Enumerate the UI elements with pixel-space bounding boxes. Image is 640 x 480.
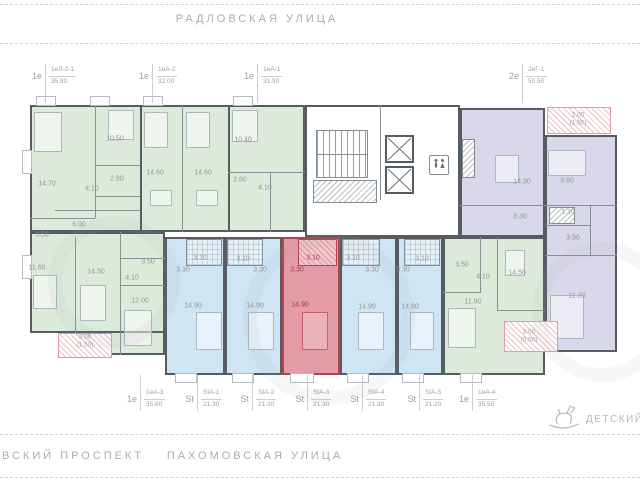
facade-window bbox=[460, 373, 482, 383]
room-area-label: 3.30 bbox=[365, 267, 379, 274]
street-label-top: РАДЛОВСКАЯ УЛИЦА bbox=[176, 13, 338, 25]
wall-line bbox=[443, 292, 481, 293]
room-area-label: 3.10 bbox=[236, 256, 250, 263]
unit-label-1ea-1[interactable]: 1е 1еА-131.90 bbox=[238, 64, 282, 88]
room-area-label: 14.90 bbox=[358, 304, 376, 311]
unit-label-sta-1[interactable]: St StА-121.30 bbox=[178, 387, 221, 411]
shaft-hatch bbox=[313, 180, 377, 203]
facade-window bbox=[22, 150, 32, 174]
furniture bbox=[33, 275, 57, 309]
callout-connector bbox=[307, 375, 308, 387]
room-area-label: 3.10 bbox=[346, 255, 360, 262]
room-area-label: 4.10 bbox=[85, 186, 99, 193]
wall-line bbox=[75, 237, 76, 333]
balcony-area-label: 3.00(0.50) bbox=[521, 329, 538, 346]
room-area-label: 14.90 bbox=[291, 302, 309, 309]
wall-line bbox=[120, 285, 165, 286]
wall-line bbox=[140, 105, 142, 232]
wall-line bbox=[380, 105, 381, 200]
staircase bbox=[316, 130, 368, 178]
street-dashed-line bbox=[0, 43, 640, 44]
wall-line bbox=[95, 196, 140, 197]
room-area-label: 3.30 bbox=[253, 267, 267, 274]
unit-label-2eg-1[interactable]: 2е 2еГ-150.50 bbox=[503, 64, 547, 88]
room-area-label: 2.80 bbox=[233, 177, 247, 184]
street-dashed-line bbox=[0, 434, 640, 435]
room-area-label: 6.00 bbox=[72, 222, 86, 229]
room-area-label: 3.90 bbox=[566, 235, 580, 242]
street-dashed-line bbox=[0, 4, 640, 5]
wall-line bbox=[460, 205, 617, 206]
facade-window bbox=[402, 373, 424, 383]
room-area-label: 14.90 bbox=[184, 303, 202, 310]
furniture bbox=[548, 150, 586, 176]
wc-sign-icon bbox=[429, 155, 449, 175]
callout-connector bbox=[252, 375, 253, 387]
callout-connector bbox=[197, 375, 198, 387]
room-area-label: 3.10 bbox=[306, 255, 320, 262]
furniture bbox=[302, 312, 328, 350]
unit-label-sta-3-selected[interactable]: St StА-321.30 bbox=[288, 387, 331, 411]
elevator-icon bbox=[385, 166, 414, 194]
room-area-label: 4.10 bbox=[476, 274, 490, 281]
room-area-label: 11.90 bbox=[465, 299, 482, 306]
room-area-label: 14.80 bbox=[401, 304, 419, 311]
room-area-label: 14.30 bbox=[513, 179, 531, 186]
furniture bbox=[34, 112, 62, 152]
wall-line bbox=[120, 232, 121, 355]
callout-connector bbox=[362, 375, 363, 387]
furniture bbox=[150, 190, 172, 206]
room-area-label: 11.60 bbox=[29, 265, 46, 272]
room-area-label: 11.20 bbox=[569, 293, 586, 300]
wall-line bbox=[270, 172, 271, 232]
facade-window bbox=[232, 373, 254, 383]
unit-area-1ea-4[interactable] bbox=[443, 237, 545, 375]
street-label-bottom-left: ВСКИЙ ПРОСПЕКТ bbox=[2, 450, 144, 462]
facade-window bbox=[233, 96, 253, 106]
wall-line bbox=[545, 255, 617, 256]
wall-line bbox=[95, 165, 140, 166]
wall-line bbox=[480, 237, 481, 292]
wall-line bbox=[182, 105, 183, 232]
room-area-label: 3.30 bbox=[396, 267, 410, 274]
balcony-area-label: 1.00(1.50) bbox=[570, 112, 587, 129]
unit-label-sta-5[interactable]: St StА-521.20 bbox=[400, 387, 443, 411]
wall-line bbox=[95, 105, 96, 218]
facade-window bbox=[90, 96, 110, 106]
furniture bbox=[124, 310, 152, 346]
furniture bbox=[410, 312, 434, 350]
furniture bbox=[358, 312, 384, 350]
furniture bbox=[144, 112, 168, 148]
room-area-label: 14.50 bbox=[87, 269, 105, 276]
room-area-label: 14.50 bbox=[508, 270, 526, 277]
bathroom-selected bbox=[298, 239, 337, 266]
wall-line bbox=[590, 205, 591, 255]
elevator-icon bbox=[385, 135, 414, 163]
callout-connector bbox=[45, 88, 46, 103]
room-area-label: 12.00 bbox=[131, 298, 149, 305]
room-area-label: 3.50 bbox=[35, 232, 49, 239]
callout-connector bbox=[522, 88, 523, 103]
wall-line bbox=[228, 172, 305, 173]
furniture bbox=[248, 312, 274, 350]
unit-label-1ea-2[interactable]: 1е 1еА-232.00 bbox=[133, 64, 177, 88]
wall-line bbox=[30, 218, 95, 219]
furniture bbox=[196, 190, 218, 206]
room-area-label: 3.30 bbox=[290, 267, 304, 274]
kindergarten-label: ДЕТСКИЙ bbox=[586, 414, 640, 425]
street-dashed-line bbox=[0, 477, 640, 478]
wall-line bbox=[55, 210, 140, 211]
room-area-label: 3.30 bbox=[176, 267, 190, 274]
rocking-horse-icon bbox=[546, 400, 582, 432]
shaft-hatch bbox=[462, 139, 475, 178]
room-area-label: 14.90 bbox=[246, 303, 264, 310]
room-area-label: 10.40 bbox=[234, 137, 252, 144]
room-area-label: 14.60 bbox=[146, 170, 164, 177]
facade-window bbox=[36, 96, 56, 106]
street-label-bottom-center: ПАХОМОВСКАЯ УЛИЦА bbox=[167, 450, 343, 462]
callout-connector bbox=[140, 375, 141, 387]
room-area-label: 3.50 bbox=[455, 262, 469, 269]
room-area-label: 4.10 bbox=[258, 185, 272, 192]
room-area-label: 3.10 bbox=[193, 255, 207, 262]
unit-label-1el-2-1[interactable]: 1е 1еЛ-2-135.80 bbox=[26, 64, 76, 88]
wall-line bbox=[228, 105, 230, 232]
balcony-area-label: 3.00(1.50) bbox=[77, 334, 94, 351]
furniture bbox=[196, 312, 222, 350]
wall-line bbox=[545, 225, 590, 226]
room-area-label: 10.50 bbox=[106, 136, 124, 143]
room-area-label: 2.80 bbox=[110, 176, 124, 183]
wall-line bbox=[497, 310, 545, 311]
callout-connector bbox=[257, 88, 258, 103]
room-area-label: 1.10 bbox=[561, 209, 575, 216]
facade-window bbox=[175, 373, 197, 383]
room-area-label: 4.10 bbox=[125, 275, 139, 282]
furniture bbox=[448, 308, 476, 348]
room-area-label: 14.70 bbox=[38, 181, 56, 188]
bathroom bbox=[342, 239, 380, 266]
floor-plan-page: РАДЛОВСКАЯ УЛИЦА bbox=[0, 0, 640, 480]
room-area-label: 9.80 bbox=[560, 178, 574, 185]
unit-label-1ea-4[interactable]: 1е 1еА-435.50 bbox=[453, 387, 497, 411]
furniture bbox=[80, 285, 106, 321]
facade-window bbox=[143, 96, 163, 106]
room-area-label: 14.60 bbox=[194, 170, 212, 177]
callout-connector bbox=[152, 88, 153, 103]
callout-connector bbox=[472, 375, 473, 387]
unit-label-sta-4[interactable]: St StА-421.30 bbox=[343, 387, 386, 411]
unit-label-1ea-3[interactable]: 1е 1еА-335.60 bbox=[121, 387, 165, 411]
unit-label-sta-2[interactable]: St StА-221.30 bbox=[233, 387, 276, 411]
wall-line bbox=[497, 237, 498, 310]
furniture bbox=[186, 112, 210, 148]
room-area-label: 3.50 bbox=[141, 259, 155, 266]
bathroom bbox=[186, 239, 222, 266]
callout-connector bbox=[419, 375, 420, 387]
facade-window bbox=[347, 373, 369, 383]
room-area-label: 8.30 bbox=[513, 214, 527, 221]
room-area-label: 3.10 bbox=[415, 256, 429, 263]
facade-window bbox=[290, 373, 314, 383]
